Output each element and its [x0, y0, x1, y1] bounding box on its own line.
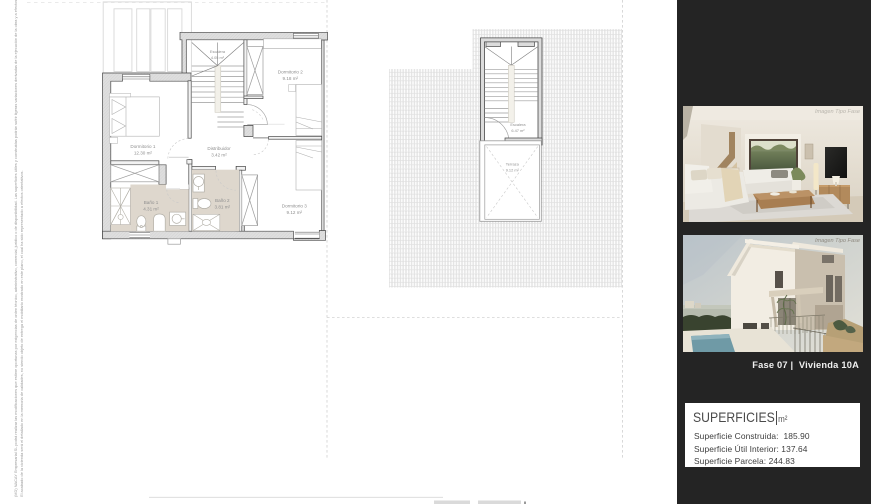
svg-text:12.30 m²: 12.30 m²	[134, 151, 153, 156]
svg-text:Dormitorio 3: Dormitorio 3	[282, 203, 307, 208]
svg-text:4.31 m²: 4.31 m²	[143, 206, 159, 211]
svg-text:4.05 m²: 4.05 m²	[211, 55, 225, 60]
svg-text:9.12 m²: 9.12 m²	[506, 167, 520, 172]
svg-text:Dormitorio 2: Dormitorio 2	[278, 69, 303, 74]
svg-text:3.81 m²: 3.81 m²	[215, 204, 231, 209]
svg-text:3.42 m²: 3.42 m²	[211, 153, 227, 158]
svg-text:9.12 m²: 9.12 m²	[287, 210, 303, 215]
svg-text:Escalera: Escalera	[510, 122, 526, 127]
svg-text:Distribuidor: Distribuidor	[207, 146, 231, 151]
svg-text:Baño 1: Baño 1	[144, 200, 159, 205]
svg-text:Escalera: Escalera	[210, 49, 226, 54]
svg-text:Dormitorio 1: Dormitorio 1	[130, 144, 155, 149]
svg-text:6.47 m²: 6.47 m²	[511, 128, 525, 133]
svg-text:Terraza: Terraza	[506, 162, 520, 167]
svg-text:9.18 m²: 9.18 m²	[283, 76, 299, 81]
svg-text:Baño 2: Baño 2	[215, 198, 230, 203]
